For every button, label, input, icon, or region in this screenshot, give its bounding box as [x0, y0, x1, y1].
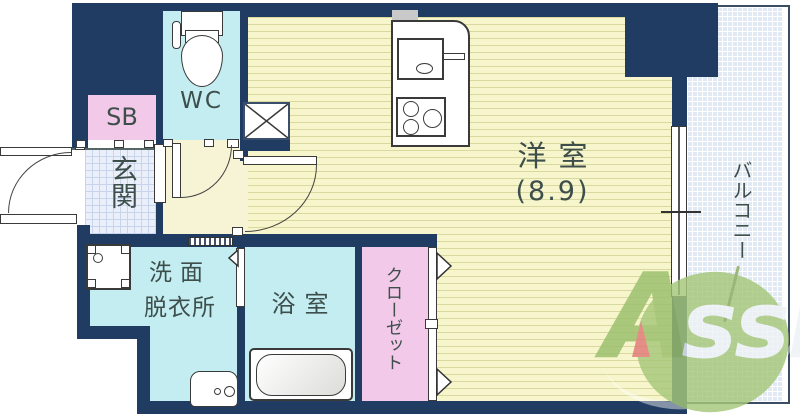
bathtub-inner: [256, 354, 346, 396]
washer-pan-drain: [93, 253, 103, 263]
washroom-label-line2: 脱衣所: [118, 291, 242, 326]
sink-faucet: [443, 53, 465, 60]
wall-washroom-step-h: [77, 326, 150, 339]
door-jamb: [425, 319, 438, 329]
entry-door-swing-arc: [8, 152, 71, 213]
door-jamb: [114, 140, 124, 148]
shoebox-label: SB: [88, 103, 156, 131]
wall-top-left-block: [72, 3, 163, 95]
stove-burner: [403, 119, 419, 135]
stove-burner: [423, 109, 442, 128]
main-room-label: 洋室: [490, 133, 615, 175]
washroom-label-line1: 洗面: [118, 256, 242, 291]
main-room-size: (8.9): [490, 176, 615, 207]
door-jamb: [144, 140, 154, 148]
logo-letters-ssist: ssist: [681, 281, 800, 370]
wc-label: WC: [163, 88, 240, 114]
stove-burner: [403, 101, 419, 117]
wall-top-wc: [163, 3, 248, 11]
bathroom-label: 浴室: [245, 284, 355, 319]
crossed-box-fixture: [243, 102, 290, 140]
floorplan: SB WC 玄関 洗面 脱衣所 浴室 クローゼット 洋室 (8.9) バルコニー…: [0, 0, 800, 416]
kitchen-sink: [397, 38, 444, 80]
genkan-step-bar: [154, 144, 166, 203]
toilet-control-panel: [172, 21, 181, 49]
logo-red-triangle: [632, 321, 650, 357]
closet-label: クローゼット: [381, 266, 406, 396]
entry-door-leaf-bottom: [0, 214, 77, 224]
genkan-label: 玄関: [102, 155, 141, 240]
washer-pan-corner: [121, 245, 130, 254]
wc-door-leaf: [172, 143, 181, 198]
assist-watermark-logo: Assist: [602, 255, 800, 416]
washer-pan-corner: [87, 279, 96, 288]
washroom-sliding-door: [188, 237, 233, 246]
washbasin-knob: [214, 388, 221, 395]
wall-right-upper: [672, 77, 687, 126]
main-room-door-leaf: [243, 156, 317, 165]
sink-drain: [416, 63, 433, 74]
washbasin-knob: [224, 386, 235, 397]
wall-pillar-topright: [625, 3, 718, 77]
washroom-label: 洗面 脱衣所: [118, 256, 242, 325]
wall-sb-wc-divider: [156, 95, 163, 148]
wall-top-main: [248, 3, 677, 17]
range-hood: [392, 10, 418, 20]
door-jamb: [232, 227, 243, 236]
wall-genkan-divider-lower: [156, 203, 163, 234]
wall-bath-closet-divider: [355, 247, 362, 401]
door-jamb: [76, 140, 86, 148]
